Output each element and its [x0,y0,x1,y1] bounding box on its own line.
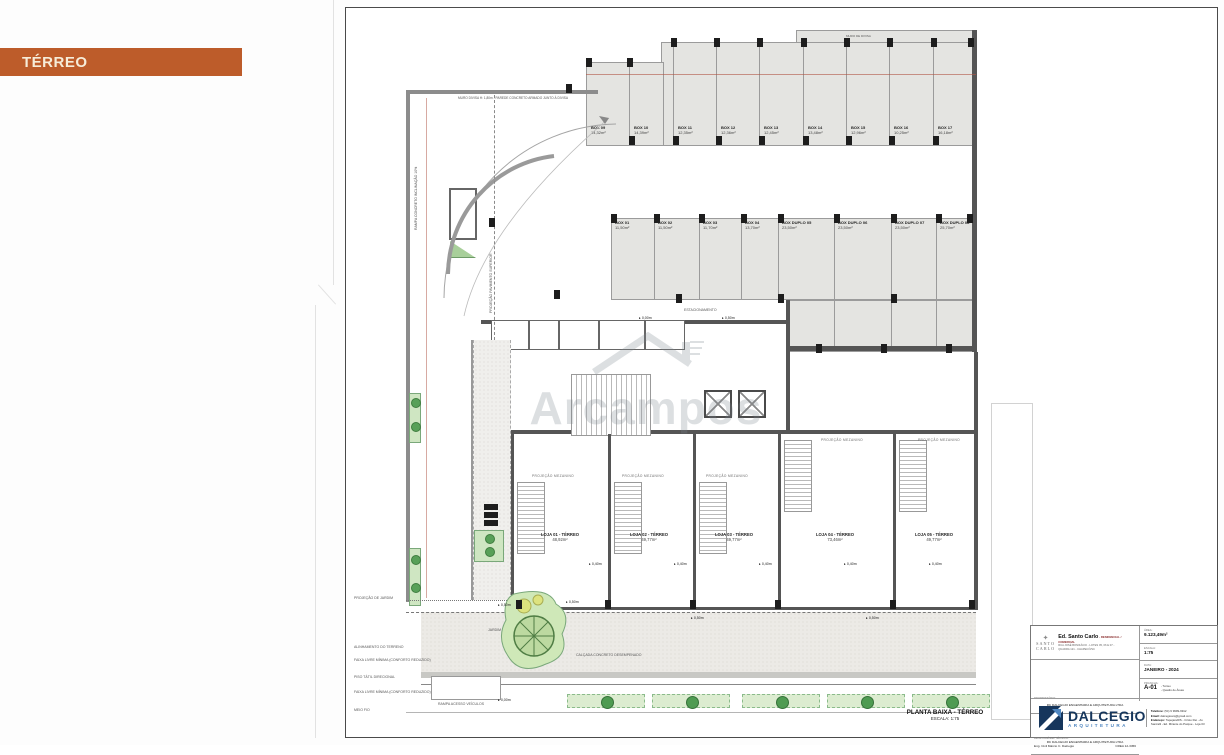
paver-block [484,520,498,526]
elevator-shaft [738,390,766,418]
column-marker [566,84,572,93]
margin-note: PISO TÁTIL DIRECIONAL [354,675,395,679]
box-divider [846,42,847,146]
date-value: JANEIRO - 2024 [1144,667,1179,672]
plan-title: PLANTA BAIXA - TÉRREO [880,709,1010,716]
tree-icon [686,696,699,709]
dimension-line [426,98,427,598]
shop-divider-wall [893,434,896,607]
tree-icon [861,696,874,709]
shop-side-wall [511,430,514,610]
column-marker [554,290,560,299]
box-label: BOX 1512,96m² [851,126,866,136]
column-marker [716,136,722,145]
box-divider [741,218,742,300]
floor-banner: TÉRREO [0,48,242,76]
sheet-stack-edge [333,0,334,285]
column-marker [778,294,784,303]
column-marker [605,600,611,609]
brand-contact: Telefone: (54) 9 9999-9912 Email: dalceg… [1146,709,1213,726]
column-marker [714,38,720,47]
column-marker [627,58,633,67]
street-planter [912,694,990,708]
garden-strip [409,548,421,606]
shop-stair [699,482,727,554]
margin-note: MEIO FIO [354,708,370,712]
column-marker [801,38,807,47]
box-label: BOX 1112,35m² [678,126,693,136]
dalcegio-logo-icon [1039,706,1063,730]
column-marker [846,136,852,145]
column-marker [969,600,975,609]
box-divider [759,42,760,146]
boundary-wall [972,30,977,352]
box-divider [803,42,804,146]
vehicle-ramp [431,676,501,700]
column-marker [759,136,765,145]
box-label: BOX 1212,36m² [721,126,736,136]
vehicle-ramp-label: RAMPA ACESSO VEÍCULOS [438,702,484,706]
paver-block [484,512,498,518]
shop-stair [517,482,545,554]
level-marker: 0,40m [674,562,687,566]
tree-icon [776,696,789,709]
projection-label: PROJEÇÃO PAVIMENTO SUPERIOR [489,253,493,313]
column-marker [889,136,895,145]
column-marker [690,600,696,609]
mezzanine-projection-label: PROJEÇÃO MEZANINO [532,474,574,478]
shop-side-wall [974,352,978,610]
column-marker [890,600,896,609]
mezzanine-projection-label: PROJEÇÃO MEZANINO [918,438,960,442]
column-marker [699,214,705,223]
brand-name: DALCEGIO [1068,709,1146,723]
planter-box [474,530,504,562]
mezzanine-projection-label: PROJEÇÃO MEZANINO [706,474,748,478]
interior-wall [786,300,790,430]
box-label: BOX 1716,18m² [938,126,953,136]
sheet-content-2: - Quadro de Áreas [1161,688,1184,692]
box-label: BOX 1413,48m² [808,126,823,136]
sidewalk-label: CALÇADA CONCRETO DESEMPENADO [576,653,641,657]
column-marker [887,38,893,47]
box-divider [778,218,779,300]
boundary-wall-label: MURO DIVISA H: 1,80m - PAREDE CONCRETO A… [458,96,568,100]
column-marker [967,214,973,223]
sheet-info-column: ÁREA: 9.123,49m² ESCALA: 1:75 DATA: JANE… [1139,626,1217,701]
box-label: BOX 0413,70m² [745,221,760,231]
level-marker: 0,40m [929,562,942,566]
level-marker: 0,50m [498,603,511,607]
level-marker: 0,50m [691,616,704,620]
sheet-number: A-01 [1144,685,1157,691]
level-marker: 0,50m [722,316,735,320]
column-marker [489,218,495,227]
shop-stair [784,440,812,512]
column-marker [816,344,822,353]
building-address: RUA JOSÉ BONIFÁCIO - LOTES 05, 06 E 07 -… [1058,644,1120,651]
shop-stair [899,440,927,512]
street-planter [827,694,905,708]
column-marker [968,38,974,47]
column-marker [834,214,840,223]
title-block: ✦ SANTOCARLO Ed. Santo Carlo - RESIDENCI… [1030,625,1218,738]
column-marker [891,214,897,223]
column-marker [586,58,592,67]
box-label: BOX DUPLO 0523,50m² [782,221,811,231]
shop-label: LOJA 01 - TÉRREO48,92m² [518,532,602,543]
shop-label: LOJA 02 - TÉRREO49,77m² [607,532,691,543]
box-label: BOX DUPLO 0623,50m² [838,221,867,231]
elevator-shaft [704,390,732,418]
column-marker [757,38,763,47]
level-marker: 0,40m [844,562,857,566]
area-value: 9.123,49m² [1144,632,1168,637]
scale-label: ESCALA: [1144,646,1213,650]
street-planter [567,694,645,708]
column-marker [611,214,617,223]
box-divider [936,218,937,352]
column-marker [654,214,660,223]
shop-label: LOJA 03 - TÉRREO49,77m² [692,532,776,543]
curb-line [421,684,976,685]
core-room [645,320,685,350]
column-marker [891,294,897,303]
level-marker: 0,50m [566,600,579,604]
dimension-line [586,74,976,75]
scale-value: 1:75 [1144,650,1153,655]
project-header: ✦ SANTOCARLO Ed. Santo Carlo - RESIDENCI… [1031,626,1139,660]
box-divider [889,42,890,146]
parking-zone-label: ESTACIONAMENTO [684,308,717,312]
ramp-label: RAMPA CONCRETO INCLINAÇÃO 10% [414,167,418,230]
column-marker [516,600,522,609]
shop-divider-wall [608,434,611,607]
box-label: BOX DUPLO 0825,70m² [940,221,969,231]
street-planter [652,694,730,708]
column-marker [676,294,682,303]
column-marker [931,38,937,47]
column-marker [671,38,677,47]
column-marker [775,600,781,609]
box-divider [654,218,655,300]
box-divider [834,218,835,352]
floor-banner-label: TÉRREO [22,54,88,71]
plan-scale: ESCALA: 1:75 [880,716,1010,721]
garden-strip [409,393,421,443]
column-marker [936,214,942,223]
box-label: BOX DUPLO 0723,50m² [895,221,924,231]
margin-note: ALINHAMENTO DO TERRENO [354,645,403,649]
level-marker: 0,00m [639,316,652,320]
box-label: BOX 0211,50m² [658,221,672,231]
box-label: BOX 0311,70m² [703,221,717,231]
sheet-stack-corner [318,285,336,305]
column-marker [946,344,952,353]
margin-note: FAIXA LIVRE MÍNIMA (CONFORTO REDUZIDO) [354,690,431,694]
tree-icon [946,696,959,709]
shop-label: LOJA 04 - TÉRREO73,46m² [793,532,877,543]
tree-icon [601,696,614,709]
main-stair [571,374,651,436]
column-marker [844,38,850,47]
margin-note: FAIXA LIVRE MÍNIMA (CONFORTO REDUZIDO) [354,658,431,662]
paver-block [484,504,498,510]
column-marker [803,136,809,145]
sheet-stack-edge [315,305,316,738]
plan-caption: PLANTA BAIXA - TÉRREO ESCALA: 1:75 [880,709,1010,721]
box-divider [933,42,934,146]
box-label: BOX 1610,25m² [894,126,909,136]
box-divider [699,218,700,300]
box-label: BOX 1014,39m² [634,126,649,136]
level-marker: 0,00m [498,698,511,702]
box-label: BOX 1312,45m² [764,126,779,136]
column-marker [673,136,679,145]
shop-label: LOJA 05 - TÉRREO49,77m² [892,532,976,543]
level-marker: 0,40m [589,562,602,566]
shop-divider-wall [778,434,781,607]
level-marker: 0,50m [866,616,879,620]
brand-row: DALCEGIO ARQUITETURA Telefone: (54) 9 99… [1031,698,1217,737]
column-marker [881,344,887,353]
box-divider [716,42,717,146]
neighbor-lot-outline [991,403,1033,720]
terrain-alignment-line [406,612,976,613]
ramp-curve-graphic [404,86,634,336]
shop-stair [614,482,642,554]
santo-carlo-logo: ✦ SANTOCARLO [1036,634,1055,651]
column-marker [778,214,784,223]
mezzanine-projection-label: PROJEÇÃO MEZANINO [622,474,664,478]
shop-divider-wall [693,434,696,607]
column-marker [741,214,747,223]
margin-note: PROJEÇÃO DE JARDIM [354,596,393,600]
column-marker [933,136,939,145]
level-marker: 0,40m [759,562,772,566]
street-planter [742,694,820,708]
mezzanine-projection-label: PROJEÇÃO MEZANINO [821,438,863,442]
column-marker [629,136,635,145]
box-divider [673,42,674,146]
box-divider [891,218,892,352]
